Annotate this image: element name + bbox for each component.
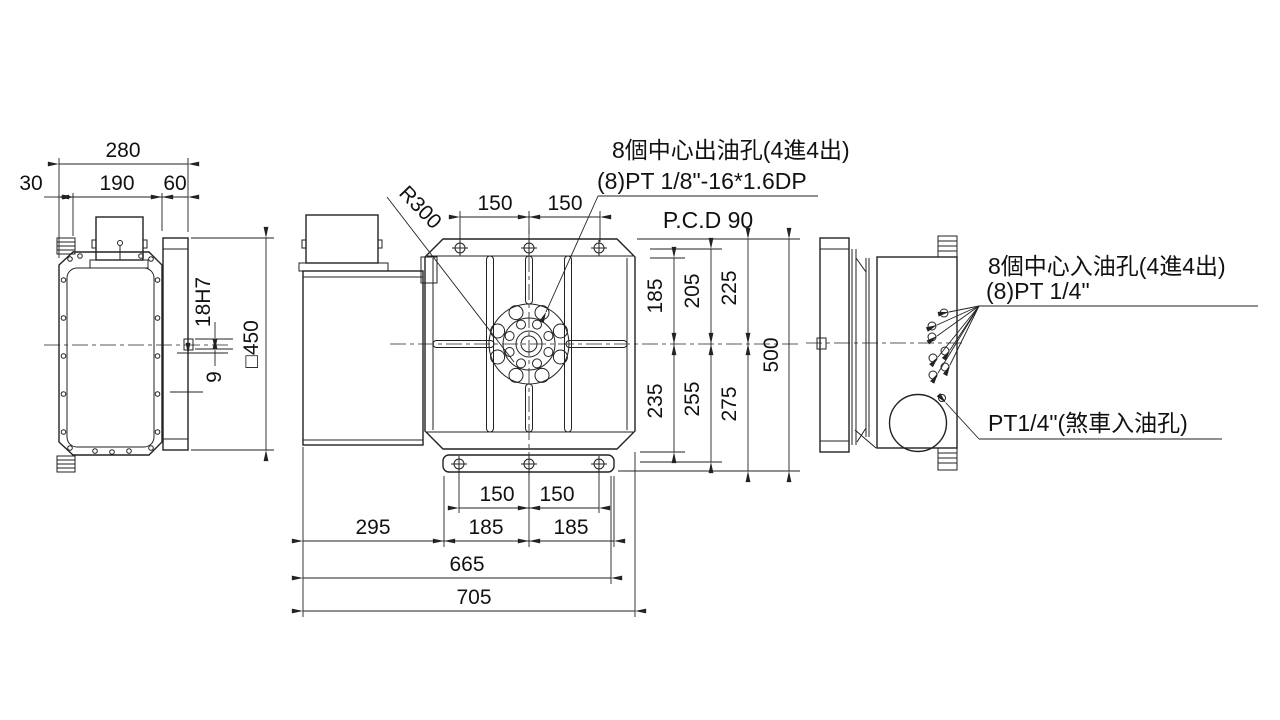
rotary-table-drawing: 280 30 190 60 □450 18H7 9 bbox=[0, 0, 1280, 720]
front-view-geometry bbox=[299, 215, 798, 480]
table-plate-side-right bbox=[817, 238, 849, 452]
connector-block-top-right bbox=[938, 236, 957, 257]
dim-280: 280 bbox=[105, 139, 140, 162]
front-view-annotations: R300 8個中心出油孔(4進4出) (8)PT 1/8"-16*1.6DP P… bbox=[387, 137, 850, 362]
dim-bot-150-r: 150 bbox=[539, 483, 574, 506]
dim-235-down: 235 bbox=[644, 383, 667, 418]
dim-18H7: 18H7 bbox=[192, 277, 215, 327]
bolt-holes bbox=[61, 254, 160, 455]
gearbox-body bbox=[303, 271, 423, 445]
left-view-geometry bbox=[44, 217, 232, 472]
right-view-annotations: 8個中心入油孔(4進4出) (8)PT 1/4" PT1/4"(煞車入油孔) bbox=[937, 253, 1258, 439]
technical-drawing-page: 280 30 190 60 □450 18H7 9 bbox=[0, 0, 1280, 720]
label-r300: R300 bbox=[394, 181, 445, 233]
dim-255-down: 255 bbox=[681, 381, 704, 416]
dim-60: 60 bbox=[163, 172, 186, 195]
label-oil-out-2: (8)PT 1/8"-16*1.6DP bbox=[597, 168, 807, 194]
oil-inlet-ports bbox=[928, 309, 949, 379]
dim-275-down: 275 bbox=[718, 386, 741, 421]
dim-bot-150-l: 150 bbox=[479, 483, 514, 506]
right-side-view: 8個中心入油孔(4進4出) (8)PT 1/4" PT1/4"(煞車入油孔) bbox=[806, 236, 1258, 470]
dim-450: □450 bbox=[240, 320, 263, 368]
dim-500: 500 bbox=[760, 337, 783, 372]
connector-block-top bbox=[57, 238, 75, 254]
oil-inlet-leaders bbox=[937, 306, 1258, 373]
label-oil-in-1: 8個中心入油孔(4進4出) bbox=[988, 253, 1226, 279]
dim-665: 665 bbox=[449, 553, 484, 576]
brake-oil-port bbox=[939, 395, 946, 402]
top-mount-holes bbox=[452, 240, 607, 256]
label-pcd: P.C.D 90 bbox=[663, 207, 753, 233]
body-right bbox=[877, 257, 957, 448]
dim-top-150-l: 150 bbox=[477, 192, 512, 215]
connector-block-bottom bbox=[57, 456, 75, 472]
dim-9: 9 bbox=[203, 371, 226, 383]
motor-box bbox=[306, 215, 378, 263]
brake-bore bbox=[890, 395, 947, 452]
dim-top-150-r: 150 bbox=[547, 192, 582, 215]
dim-185-up: 185 bbox=[644, 278, 667, 313]
dim-295: 295 bbox=[355, 516, 390, 539]
dim-225-up: 225 bbox=[718, 270, 741, 305]
right-view-geometry bbox=[806, 236, 962, 470]
connector-block-bottom-right bbox=[938, 448, 957, 470]
dim-bot-185-l: 185 bbox=[468, 516, 503, 539]
dim-705: 705 bbox=[456, 586, 491, 609]
centerlines bbox=[390, 228, 798, 480]
label-brake: PT1/4"(煞車入油孔) bbox=[988, 410, 1188, 436]
motor-housing bbox=[90, 217, 148, 268]
label-oil-in-2: (8)PT 1/4" bbox=[986, 278, 1090, 304]
dim-190: 190 bbox=[99, 172, 134, 195]
left-side-view: 280 30 190 60 □450 18H7 9 bbox=[19, 139, 274, 472]
flange-profile bbox=[852, 249, 876, 448]
dim-bot-185-r: 185 bbox=[553, 516, 588, 539]
dim-205-up: 205 bbox=[681, 273, 704, 308]
left-view-dimensions: 280 30 190 60 □450 18H7 9 bbox=[19, 139, 274, 450]
front-view: R300 8個中心出油孔(4進4出) (8)PT 1/8"-16*1.6DP P… bbox=[299, 137, 850, 617]
dim-30: 30 bbox=[19, 172, 42, 195]
key-slot bbox=[817, 338, 826, 349]
bottom-mount-strip bbox=[443, 455, 614, 472]
label-oil-out-1: 8個中心出油孔(4進4出) bbox=[612, 137, 850, 163]
table-plate-side bbox=[163, 238, 193, 450]
